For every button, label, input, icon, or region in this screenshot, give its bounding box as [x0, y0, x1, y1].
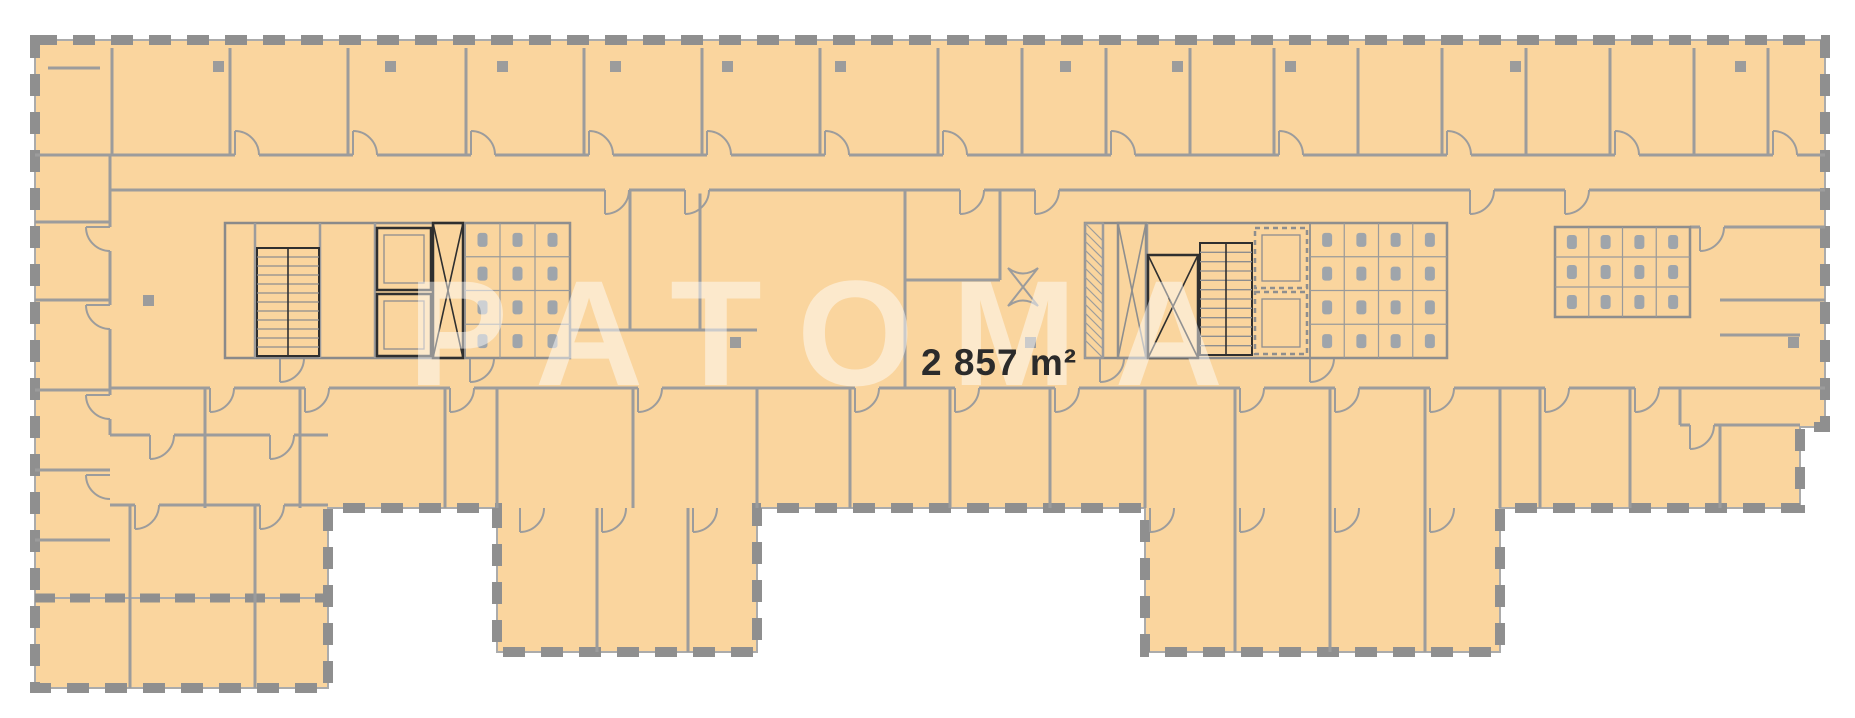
floor-plan-page: PATOMA 2 857 m²	[0, 0, 1855, 718]
area-label: 2 857 m²	[921, 344, 1077, 381]
